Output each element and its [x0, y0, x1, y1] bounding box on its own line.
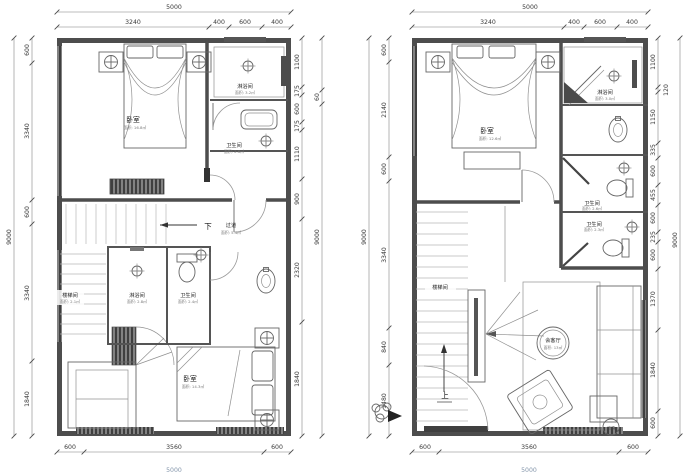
dimensions-right-left-plan: 1100 175 600 175 1110 900 2320 1840 9000…: [294, 36, 324, 439]
sofa-icon: [68, 362, 136, 428]
dim-label: 840: [381, 341, 388, 353]
dim-label: 400: [568, 19, 580, 26]
dim-label: 3240: [125, 19, 141, 26]
dim-label: 2140: [381, 102, 388, 118]
bedroom-top-left-plan: 卧室 面积: 16.8㎡: [99, 44, 211, 148]
dim-label: 2320: [294, 262, 301, 278]
room-label: 淋浴间: [237, 82, 253, 90]
dim-label: 600: [239, 19, 251, 26]
room-label: 卫生间: [180, 291, 196, 299]
stairs-up-arrow: [441, 344, 447, 353]
dim-label: 900: [294, 193, 301, 205]
dim-label: 175: [294, 120, 301, 132]
room-label: 淋浴间: [597, 88, 613, 96]
room-label: 楼梯间: [432, 283, 448, 291]
dim-label: 3560: [166, 444, 182, 451]
dim-label: 600: [294, 103, 301, 115]
sink-icon: [259, 134, 274, 149]
bedroom-right-plan: 卧室 面积: 12.6㎡: [426, 44, 560, 169]
dim-label: 9000: [6, 229, 13, 245]
shower-glass-icon: [564, 82, 588, 103]
stairwell-left-plan: 楼梯间 面积: 2.1㎡: [55, 254, 174, 365]
dim-label: 400: [213, 19, 225, 26]
bathroom-mid-left-plan: 卫生间 面积: 2.4㎡: [177, 248, 275, 305]
corridor-left-plan: 下 过道 面积: 5.4㎡: [66, 179, 241, 244]
room-label: 卧室: [126, 115, 140, 124]
door-leaf: [424, 426, 488, 432]
dim-label: 600: [24, 44, 31, 56]
dim-label: 1840: [294, 371, 301, 387]
door-arc: [234, 200, 266, 232]
bathroom-upper-right-plan: 卫生间 面积: 2.6㎡: [563, 158, 633, 211]
washbasin-icon: [609, 117, 627, 143]
dim-label: 600: [594, 19, 606, 26]
dim-label: 600: [381, 44, 388, 56]
dim-label: 3340: [24, 285, 31, 301]
bathroom-top-left-plan: 卫生间 面积: 2.6㎡: [213, 103, 277, 154]
toilet-icon: [177, 254, 197, 282]
room-area: 面积: 3.0㎡: [595, 96, 615, 101]
dim-label: 600: [419, 444, 431, 451]
dimensions-right-right-plan: 1100 120 1150 335 600 455 600 235 600 13…: [650, 36, 682, 439]
pillow-icon: [127, 46, 153, 58]
dim-label: 455: [650, 189, 657, 201]
bed-icon: [452, 44, 536, 148]
washbasin-icon: [257, 268, 275, 294]
room-area: 面积: 2.4㎡: [178, 299, 198, 304]
dimensions-bottom-right-plan: 600 3560 600 5000: [410, 444, 651, 473]
dim-label: 600: [650, 249, 657, 261]
wardrobe-hatch: [412, 46, 417, 156]
pillow-icon: [157, 46, 183, 58]
toilet-icon: [603, 239, 629, 257]
toilet-icon: [607, 179, 633, 197]
room-label: 楼梯间: [62, 291, 78, 299]
sink-icon: [625, 220, 640, 235]
door-arc: [213, 103, 240, 130]
dim-label: 1150: [650, 109, 657, 125]
dim-label: 600: [650, 165, 657, 177]
door-arc: [424, 366, 488, 430]
dim-label: 1100: [650, 54, 657, 70]
ceiling-lamp-icon: [255, 328, 279, 348]
stairwell-right-plan: 楼梯间: [416, 212, 544, 421]
dimensions-bottom-left-plan: 600 3560 600 5000: [55, 444, 294, 473]
mirror-icon: [281, 56, 286, 86]
door-arc: [522, 170, 554, 202]
room-area: 面积: 13㎡: [544, 345, 563, 350]
window-hatch: [216, 427, 284, 434]
mirror-icon: [632, 60, 637, 88]
shower-room-right-plan: 淋浴间 面积: 3.0㎡: [564, 37, 642, 142]
stairs-down-arrow: [160, 222, 168, 227]
floor-plan-drawing: 5000 3240 400 600 400 9000 600 3340 600 …: [0, 0, 694, 473]
room-label: 卫生间: [226, 141, 242, 149]
dim-label: 400: [271, 19, 283, 26]
shower-head-icon: [241, 59, 256, 74]
dim-label: 120: [663, 84, 670, 96]
dim-label: 9000: [672, 232, 679, 248]
dim-label: 235: [650, 231, 657, 243]
dim-label: 600: [650, 212, 657, 224]
armchair-icon: [507, 369, 574, 435]
room-label: 卧室: [183, 374, 197, 383]
room-label: 过道: [226, 221, 236, 229]
room-area: 面积: 16.8㎡: [124, 125, 147, 130]
room-area: 面积: 5.4㎡: [221, 230, 241, 235]
shower-head-icon: [607, 69, 622, 84]
dim-label: 1840: [24, 391, 31, 407]
dim-label: 9000: [361, 229, 368, 245]
wall-hatch: [641, 300, 646, 418]
dim-label: 400: [626, 19, 638, 26]
ac-label: 空调: [607, 425, 615, 430]
dim-label: 9000: [314, 229, 321, 245]
dim-label: 335: [650, 144, 657, 156]
room-label: 会客厅: [545, 336, 561, 344]
room-label: 淋浴间: [129, 291, 145, 299]
dimensions-left-left-plan: 9000 600 3340 600 3340 1840: [6, 36, 34, 439]
bathroom-lower-right-plan: 卫生间 面积: 2.3㎡: [563, 220, 640, 267]
dim-label: 175: [294, 85, 301, 97]
room-area: 面积: 2.6㎡: [582, 206, 602, 211]
door-leaf: [563, 158, 589, 184]
room-label: 卧室: [480, 126, 494, 135]
wardrobe-hatch: [57, 46, 62, 196]
floor-plan-right: 5000 3240 400 600 400 9000 600 2140 600 …: [361, 4, 682, 473]
dim-label: 60: [314, 93, 321, 101]
dim-label: 3340: [381, 247, 388, 263]
dim-label: 600: [24, 206, 31, 218]
dim-label: 600: [627, 444, 639, 451]
ceiling-lamp-icon: [536, 52, 560, 72]
dim-label: 600: [271, 444, 283, 451]
shower-head-icon: [130, 264, 145, 279]
down-note: 下: [204, 222, 212, 231]
dim-label: 600: [650, 417, 657, 429]
room-area: 面积: 3.2㎡: [235, 90, 255, 95]
room-area: 面积: 2.1㎡: [60, 299, 80, 304]
up-note: 上: [441, 391, 449, 400]
lintel: [224, 37, 266, 42]
pillow-icon: [457, 46, 483, 58]
dim-label: 3560: [521, 444, 537, 451]
dim-label: 1100: [294, 54, 301, 70]
dim-label: 600: [64, 444, 76, 451]
radiator-icon: [110, 179, 164, 194]
dimensions-left-right-plan: 9000 600 2140 600 3340 840 1480: [361, 36, 402, 439]
room-area: 面积: 2.6㎡: [224, 149, 244, 154]
dim-label: 600: [381, 163, 388, 175]
bench-icon: [464, 152, 520, 169]
walls-left-plan: [57, 38, 291, 434]
plans-canvas: 5000 3240 400 600 400 9000 600 3340 600 …: [0, 0, 694, 473]
room-area: 面积: 14.3㎡: [182, 384, 205, 389]
lintel: [584, 37, 626, 42]
dim-label: 3240: [480, 19, 496, 26]
ceiling-lamp-icon: [99, 52, 123, 72]
dim-label: 1840: [650, 362, 657, 378]
dim-label: 1110: [294, 146, 301, 162]
sink-icon: [194, 248, 209, 263]
dim-label: 1370: [650, 291, 657, 307]
ceiling-lamp-icon: [426, 52, 450, 72]
dim-label: 5000: [521, 467, 537, 473]
room-area: 面积: 2.3㎡: [584, 227, 604, 232]
shower-room-top-left-plan: 淋浴间 面积: 3.2㎡: [214, 37, 286, 97]
door-arc: [210, 175, 235, 200]
room-area: 面积: 12.6㎡: [479, 136, 502, 141]
pillow-icon: [489, 46, 515, 58]
pillow-icon: [252, 351, 273, 381]
stairs-icon: [112, 327, 136, 365]
sink-icon: [617, 161, 632, 176]
dim-label: 5000: [166, 4, 182, 11]
door-arc: [210, 252, 238, 280]
room-area: 面积: 2.8㎡: [127, 299, 147, 304]
dim-label: 5000: [522, 4, 538, 11]
dim-label: 3340: [24, 123, 31, 139]
door-leaf: [204, 168, 210, 182]
sofa-icon: [597, 286, 641, 418]
dimensions-top-right-plan: 5000 3240 400 600 400: [410, 4, 651, 29]
living-room-right-plan: 会客厅 面积: 13㎡ 空调: [507, 282, 641, 435]
floor-plan-left: 5000 3240 400 600 400 9000 600 3340 600 …: [6, 4, 324, 473]
dim-label: 5000: [166, 467, 182, 473]
dimensions-top-left-plan: 5000 3240 400 600 400: [55, 4, 294, 29]
bed-icon: [124, 44, 186, 148]
door-leaf: [563, 243, 588, 266]
